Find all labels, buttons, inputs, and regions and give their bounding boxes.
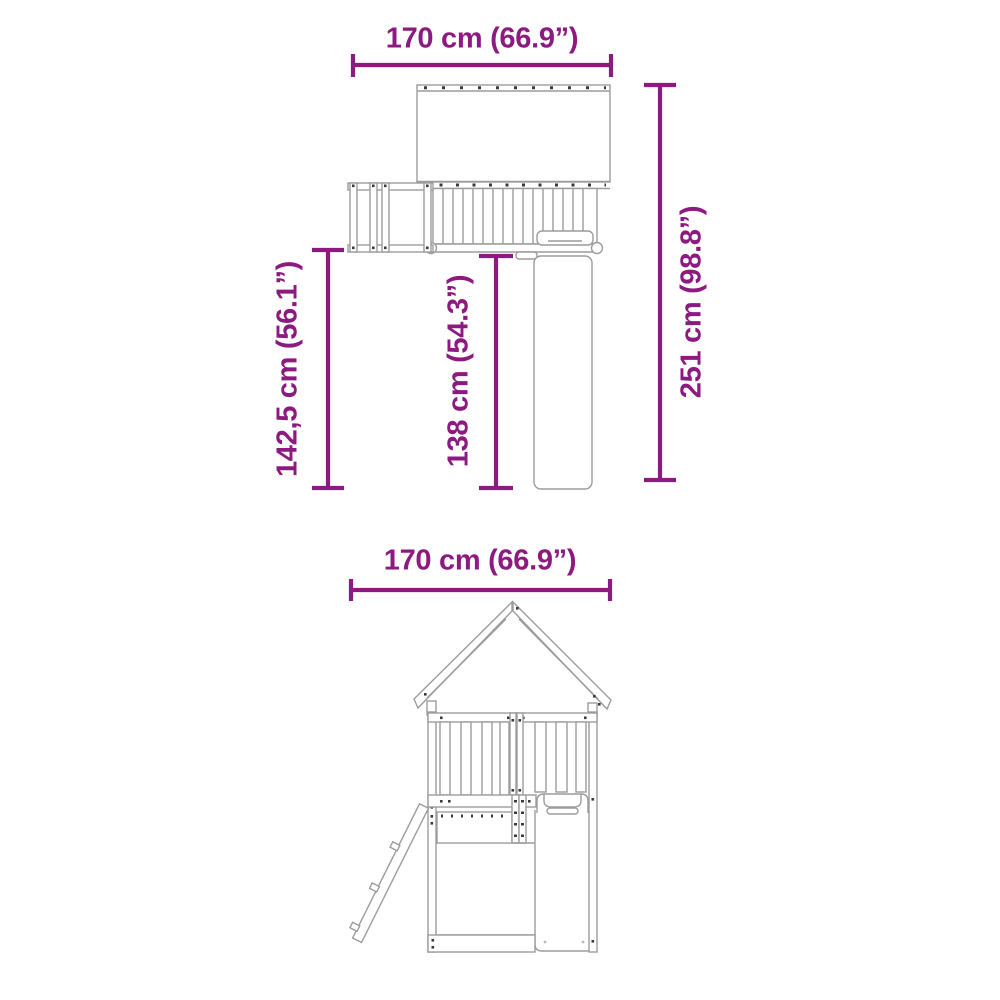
slide-top-view (534, 256, 592, 489)
slide-front-view (535, 794, 593, 951)
platform-depth-label: 142,5 cm (56.1”) (272, 261, 305, 477)
overall-height-label: 251 cm (98.8”) (676, 206, 709, 398)
roof-top-view (417, 85, 610, 182)
front-view-width-label: 170 cm (66.9”) (384, 545, 576, 578)
front-view-drawing (346, 579, 611, 952)
top-view-width-label: 170 cm (66.9”) (386, 23, 578, 56)
base-board (428, 935, 535, 952)
dimension-line-slide-depth (479, 256, 513, 488)
ladder-front-view (346, 801, 428, 943)
playhouse-dimension-diagram: 170 cm (66.9”) 142,5 cm (56.1”) 138 cm (… (0, 0, 1000, 1000)
top-view-drawing (312, 54, 676, 489)
half-wall-panel (437, 812, 512, 843)
roof-front-view (414, 602, 611, 709)
dimension-line-platform-depth (312, 250, 344, 488)
dimension-line-top-width (353, 54, 611, 77)
dimension-line-front-width (351, 579, 610, 601)
platform-deck-top-view (417, 182, 610, 260)
slide-entry-inset (537, 231, 593, 245)
diagram-line-art (0, 0, 1000, 1000)
slide-depth-label: 138 cm (54.3”) (443, 275, 476, 467)
lower-level-front-view (428, 795, 536, 952)
dimension-line-overall-height (644, 85, 676, 480)
railing-front-view (428, 713, 597, 795)
ladder-top-view (348, 183, 433, 252)
